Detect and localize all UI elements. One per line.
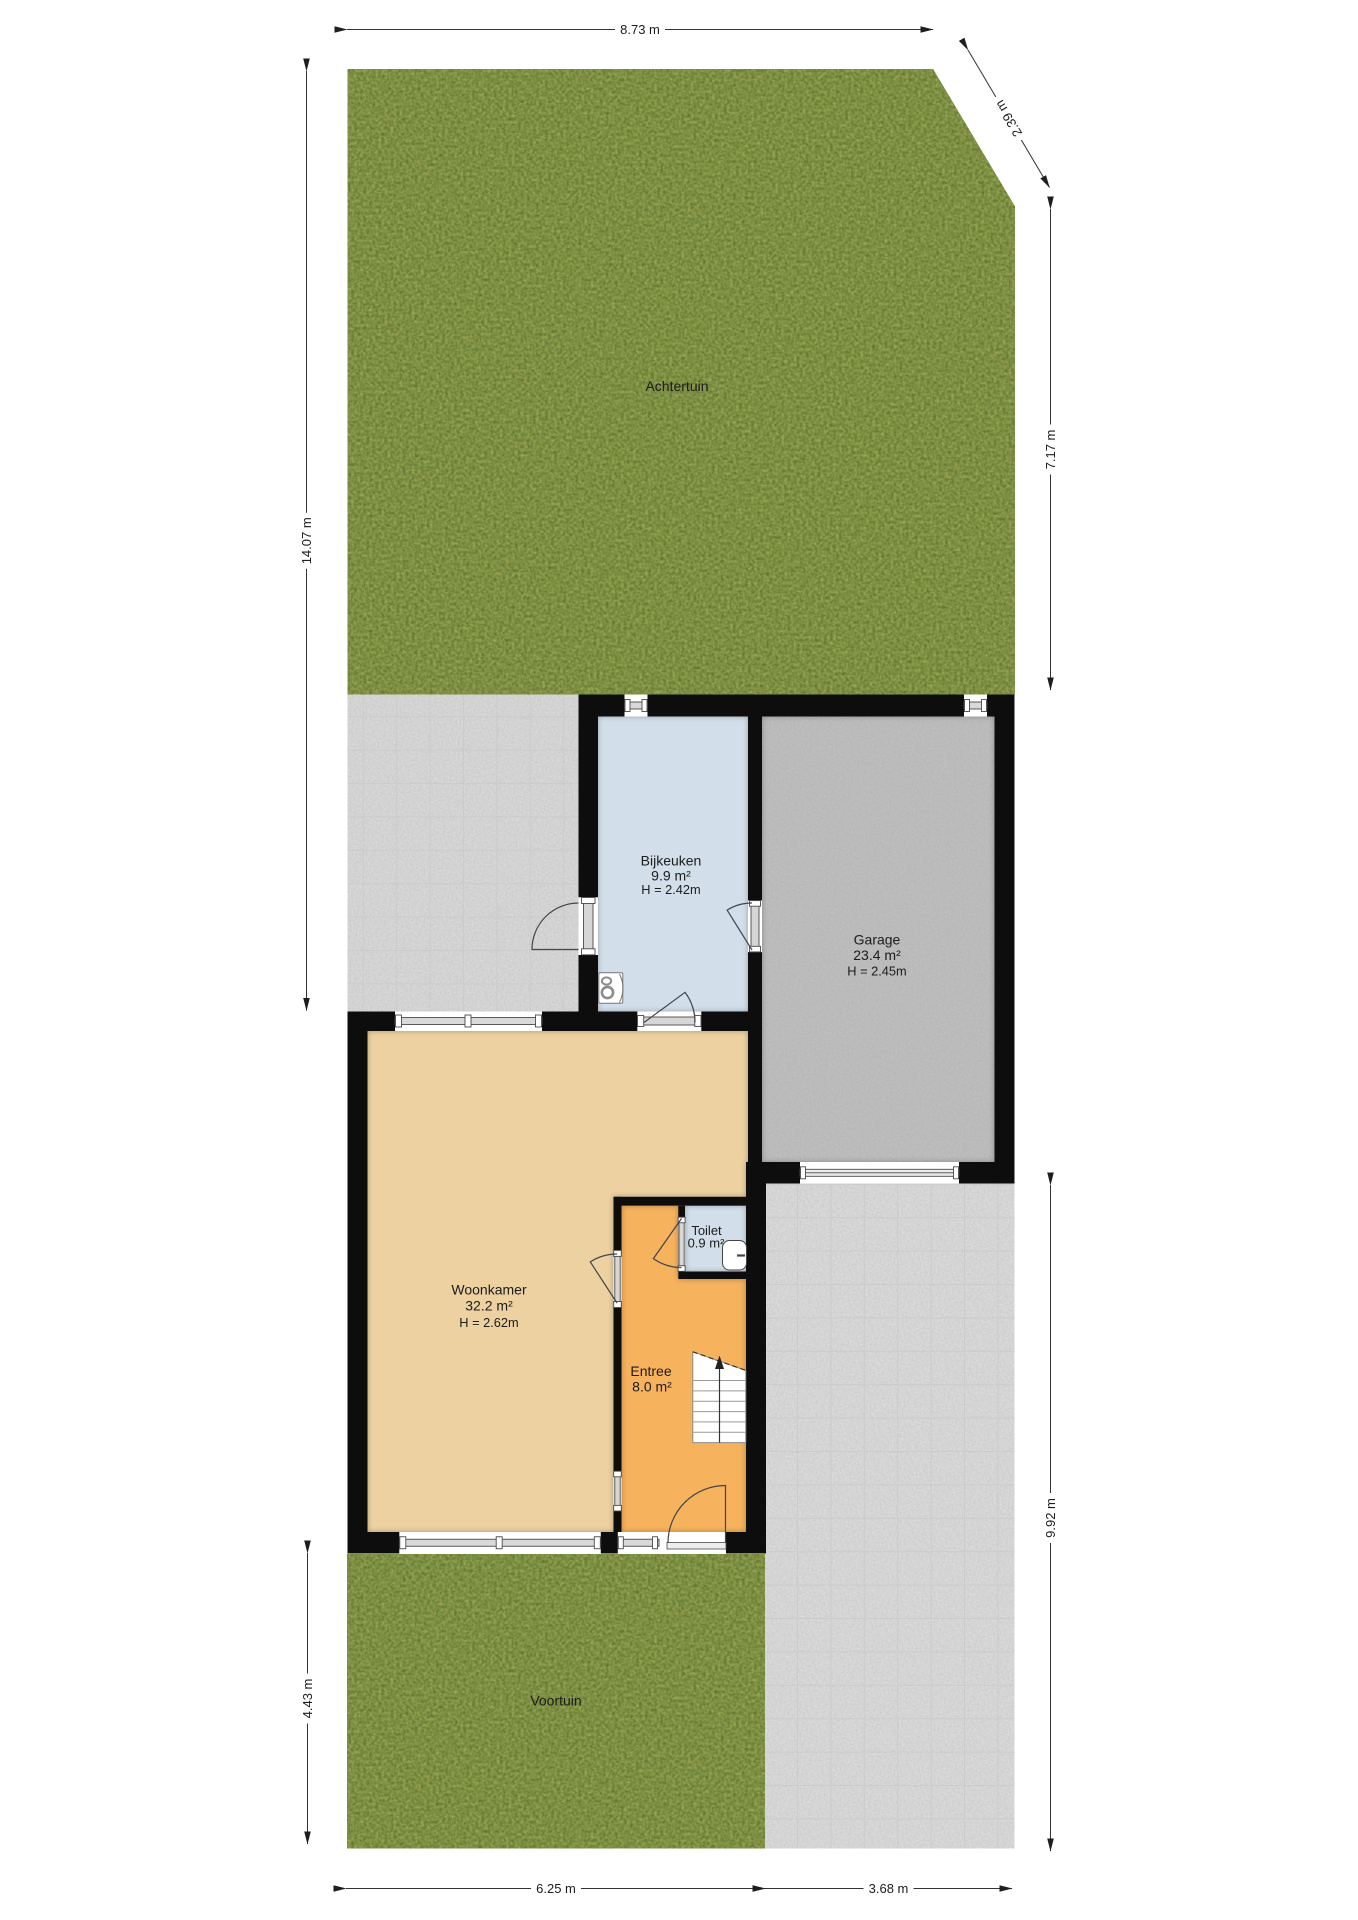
- svg-text:H = 2.62m: H = 2.62m: [459, 1315, 518, 1330]
- svg-text:H = 2.42m: H = 2.42m: [641, 882, 700, 897]
- svg-text:Garage: Garage: [854, 932, 901, 948]
- svg-text:14.07 m: 14.07 m: [299, 517, 314, 564]
- svg-text:32.2 m²: 32.2 m²: [465, 1298, 513, 1314]
- svg-text:Bijkeuken: Bijkeuken: [641, 853, 702, 869]
- svg-text:H = 2.45m: H = 2.45m: [847, 963, 906, 978]
- svg-text:7.17 m: 7.17 m: [1043, 430, 1058, 470]
- svg-text:3.68 m: 3.68 m: [869, 1881, 909, 1896]
- svg-text:8.0 m²: 8.0 m²: [632, 1379, 672, 1395]
- svg-text:Achtertuin: Achtertuin: [645, 378, 708, 394]
- svg-text:Entree: Entree: [630, 1363, 671, 1379]
- svg-text:Voortuin: Voortuin: [530, 1693, 581, 1709]
- svg-text:8.73 m: 8.73 m: [620, 22, 660, 37]
- svg-text:0.9 m²: 0.9 m²: [688, 1235, 726, 1250]
- svg-text:Woonkamer: Woonkamer: [451, 1282, 527, 1298]
- svg-text:23.4 m²: 23.4 m²: [853, 947, 901, 963]
- svg-text:9.92 m: 9.92 m: [1043, 1498, 1058, 1538]
- svg-text:4.43 m: 4.43 m: [300, 1679, 315, 1719]
- svg-text:6.25 m: 6.25 m: [536, 1881, 576, 1896]
